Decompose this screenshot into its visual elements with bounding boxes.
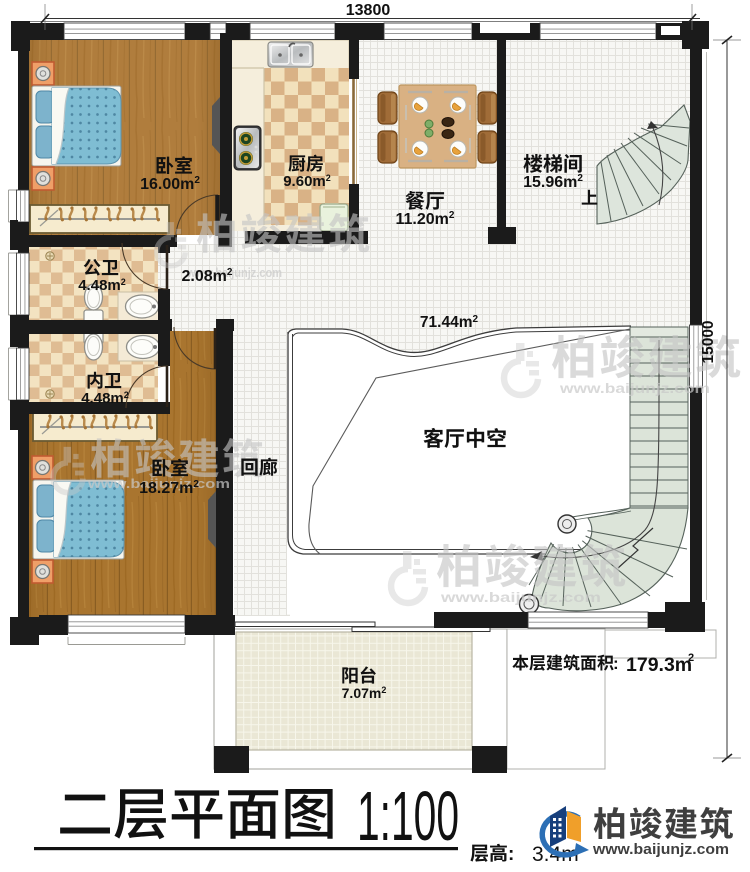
svg-text::: : [613, 654, 619, 673]
svg-text:13800: 13800 [346, 2, 391, 19]
svg-text:www.baijunjz.com: www.baijunjz.com [559, 380, 710, 396]
svg-text:18.27m2: 18.27m2 [139, 479, 199, 497]
svg-text:179.3m: 179.3m [626, 654, 692, 676]
svg-text:www.baijunjz.com: www.baijunjz.com [440, 589, 601, 605]
svg-text::: : [508, 844, 514, 865]
svg-text:16.00m2: 16.00m2 [140, 175, 200, 193]
svg-text:2.08m2: 2.08m2 [182, 267, 233, 285]
svg-text:4.48m2: 4.48m2 [81, 390, 129, 407]
svg-text:4.48m2: 4.48m2 [78, 277, 126, 294]
svg-text:2: 2 [688, 652, 694, 664]
svg-text:7.07m2: 7.07m2 [342, 685, 387, 701]
svg-text:1:100: 1:100 [357, 777, 459, 855]
svg-text:71.44m2: 71.44m2 [420, 314, 479, 331]
svg-text:11.20m2: 11.20m2 [396, 210, 455, 228]
svg-text:www.baijunjz.com: www.baijunjz.com [592, 841, 729, 858]
svg-text:15.96m2: 15.96m2 [523, 173, 583, 191]
svg-text:15000: 15000 [700, 320, 717, 363]
svg-text:9.60m2: 9.60m2 [283, 173, 331, 190]
